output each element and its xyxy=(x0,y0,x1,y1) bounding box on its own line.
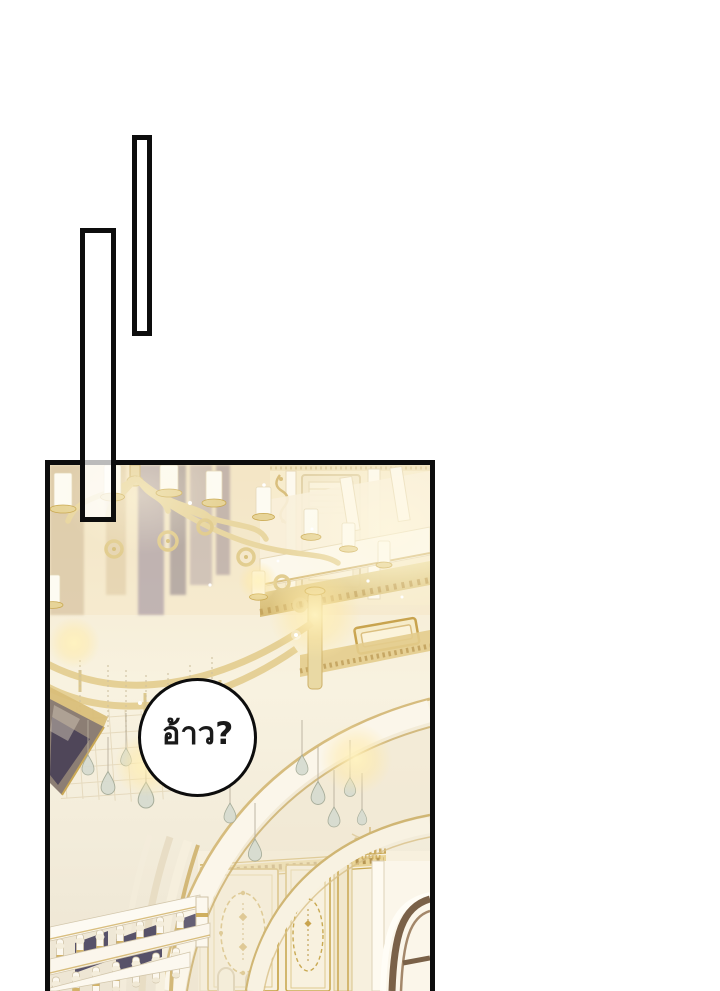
comic-panel: อ้าว? xyxy=(45,460,435,991)
comic-page: อ้าว? xyxy=(0,0,720,991)
speech-bubble: อ้าว? xyxy=(138,678,257,797)
gold-pilaster xyxy=(334,863,352,991)
door-frame xyxy=(372,861,430,991)
speech-bubble-text: อ้าว? xyxy=(162,719,233,750)
divider-bar-left xyxy=(80,228,116,522)
divider-bar-right xyxy=(132,135,152,336)
